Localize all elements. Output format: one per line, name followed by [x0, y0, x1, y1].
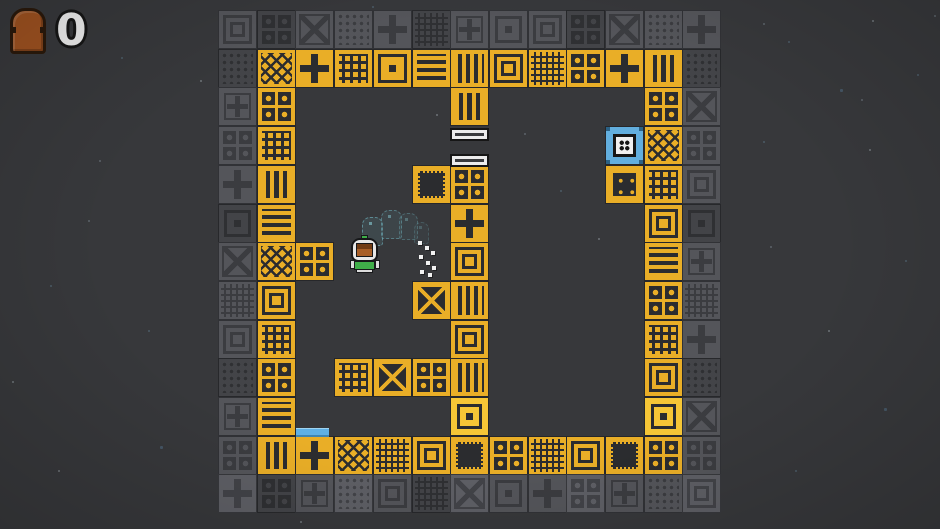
border-tile — [218, 165, 257, 204]
star — [300, 521, 302, 523]
sparkle-particle — [425, 246, 429, 250]
border-tile — [218, 49, 257, 88]
star — [200, 80, 202, 82]
border-tile — [218, 358, 257, 397]
wall-tile — [257, 49, 296, 88]
wall-tile — [257, 320, 296, 359]
border-tile — [218, 126, 257, 165]
border-tile — [295, 10, 334, 49]
wall-tile — [257, 204, 296, 243]
star — [828, 330, 830, 332]
border-tile — [218, 87, 257, 126]
star — [884, 408, 887, 411]
border-tile — [528, 10, 567, 49]
border-tile — [450, 474, 489, 513]
star — [788, 41, 790, 43]
star — [917, 74, 919, 76]
wall-tile — [644, 358, 683, 397]
border-tile — [218, 10, 257, 49]
anchor-tile — [644, 397, 683, 436]
anchor-tile — [450, 397, 489, 436]
border-tile — [682, 165, 721, 204]
border-tile — [682, 126, 721, 165]
border-tile — [682, 10, 721, 49]
star — [436, 114, 438, 116]
sparkle-particle — [418, 241, 422, 245]
sparkle-particle — [431, 251, 435, 255]
border-tile — [644, 10, 683, 49]
wall-tile — [257, 358, 296, 397]
cross-tile — [605, 49, 644, 88]
star — [763, 23, 765, 25]
sparkle-particle — [419, 255, 423, 259]
wall-tile — [412, 436, 451, 475]
star — [524, 133, 526, 135]
blue-platform[interactable] — [296, 428, 329, 437]
wall-tile — [257, 397, 296, 436]
gate-bar[interactable] — [450, 128, 489, 141]
wall-tile — [334, 436, 373, 475]
star — [872, 20, 874, 22]
star — [58, 470, 60, 472]
border-tile — [218, 204, 257, 243]
wall-tile — [257, 165, 296, 204]
x-tile — [412, 281, 451, 320]
border-tile — [295, 474, 334, 513]
circles-tile — [450, 165, 489, 204]
wall-tile — [412, 49, 451, 88]
border-tile — [373, 474, 412, 513]
star — [905, 260, 907, 262]
wall-tile — [644, 242, 683, 281]
border-tile — [682, 87, 721, 126]
door-count: 0 — [56, 8, 87, 54]
hud: 0 — [0, 0, 120, 70]
border-tile — [257, 474, 296, 513]
border-tile — [218, 242, 257, 281]
wall-tile — [450, 436, 489, 475]
wall-tile — [528, 436, 567, 475]
player-character[interactable] — [350, 235, 380, 273]
wall-tile — [644, 126, 683, 165]
wall-tile — [450, 320, 489, 359]
wall-tile — [644, 204, 683, 243]
border-tile — [412, 10, 451, 49]
border-tile — [682, 281, 721, 320]
wall-tile — [450, 281, 489, 320]
border-tile — [528, 474, 567, 513]
sparkle-particle — [420, 270, 424, 274]
border-tile — [605, 10, 644, 49]
star — [99, 160, 101, 162]
border-tile — [218, 281, 257, 320]
star — [560, 190, 562, 192]
border-tile — [218, 397, 257, 436]
border-tile — [373, 10, 412, 49]
border-tile — [566, 10, 605, 49]
wall-tile — [489, 49, 528, 88]
border-tile — [257, 10, 296, 49]
wall-tile — [295, 49, 334, 88]
border-tile — [489, 474, 528, 513]
border-tile — [682, 397, 721, 436]
wall-tile — [450, 242, 489, 281]
wall-tile — [450, 204, 489, 243]
sparkle-particle — [428, 273, 432, 277]
wall-tile — [644, 320, 683, 359]
border-tile — [489, 10, 528, 49]
border-tile — [682, 358, 721, 397]
border-tile — [682, 320, 721, 359]
border-tile — [334, 474, 373, 513]
star — [763, 141, 765, 143]
border-tile — [218, 320, 257, 359]
wall-tile — [412, 358, 451, 397]
game-screen: 0 — [0, 0, 940, 529]
star — [840, 89, 843, 92]
sparkle-particle — [432, 266, 436, 270]
player-visor — [356, 243, 373, 257]
wall-tile — [566, 436, 605, 475]
border-tile — [218, 474, 257, 513]
wall-tile — [257, 281, 296, 320]
wall-tile — [644, 281, 683, 320]
wall-tile — [566, 49, 605, 88]
border-tile — [682, 204, 721, 243]
wall-tile — [605, 436, 644, 475]
wall-tile — [373, 49, 412, 88]
wall-tile — [295, 436, 334, 475]
dotted-tile — [412, 165, 451, 204]
star — [160, 446, 163, 449]
border-tile — [450, 10, 489, 49]
border-tile — [412, 474, 451, 513]
sparkle-particle — [426, 261, 430, 265]
star — [770, 246, 772, 248]
wall-tile — [450, 358, 489, 397]
wall-tile — [450, 87, 489, 126]
wall-tile — [257, 242, 296, 281]
wall-tile — [450, 49, 489, 88]
wall-tile — [489, 436, 528, 475]
wall-tile — [528, 49, 567, 88]
border-tile — [566, 474, 605, 513]
border-tile — [218, 436, 257, 475]
star — [861, 99, 863, 101]
wall-tile — [644, 436, 683, 475]
wall-tile — [257, 126, 296, 165]
border-tile — [334, 10, 373, 49]
border-tile — [605, 474, 644, 513]
border-tile — [644, 474, 683, 513]
border-tile — [682, 474, 721, 513]
circles-tile — [295, 242, 334, 281]
wall-tile — [334, 49, 373, 88]
star — [598, 238, 600, 240]
border-tile — [682, 436, 721, 475]
wall-tile — [644, 165, 683, 204]
border-tile — [682, 242, 721, 281]
wall-tile — [644, 87, 683, 126]
star — [795, 470, 797, 472]
star — [372, 6, 374, 8]
wall-tile — [373, 358, 412, 397]
blue-switch-tile[interactable] — [605, 126, 644, 165]
player-feet — [356, 269, 373, 273]
star — [88, 220, 90, 222]
star — [934, 15, 936, 17]
star — [869, 149, 871, 151]
border-tile — [682, 49, 721, 88]
wall-tile — [644, 49, 683, 88]
wall-tile — [373, 436, 412, 475]
star — [50, 285, 52, 287]
star — [148, 330, 150, 332]
gate-bar[interactable] — [450, 154, 489, 167]
star — [121, 57, 123, 59]
wall-tile — [257, 87, 296, 126]
player-arm-right — [375, 260, 380, 269]
wall-tile — [257, 436, 296, 475]
star — [12, 381, 14, 383]
wall-tile — [334, 358, 373, 397]
door-icon — [10, 8, 46, 54]
socket-tile — [605, 165, 644, 204]
